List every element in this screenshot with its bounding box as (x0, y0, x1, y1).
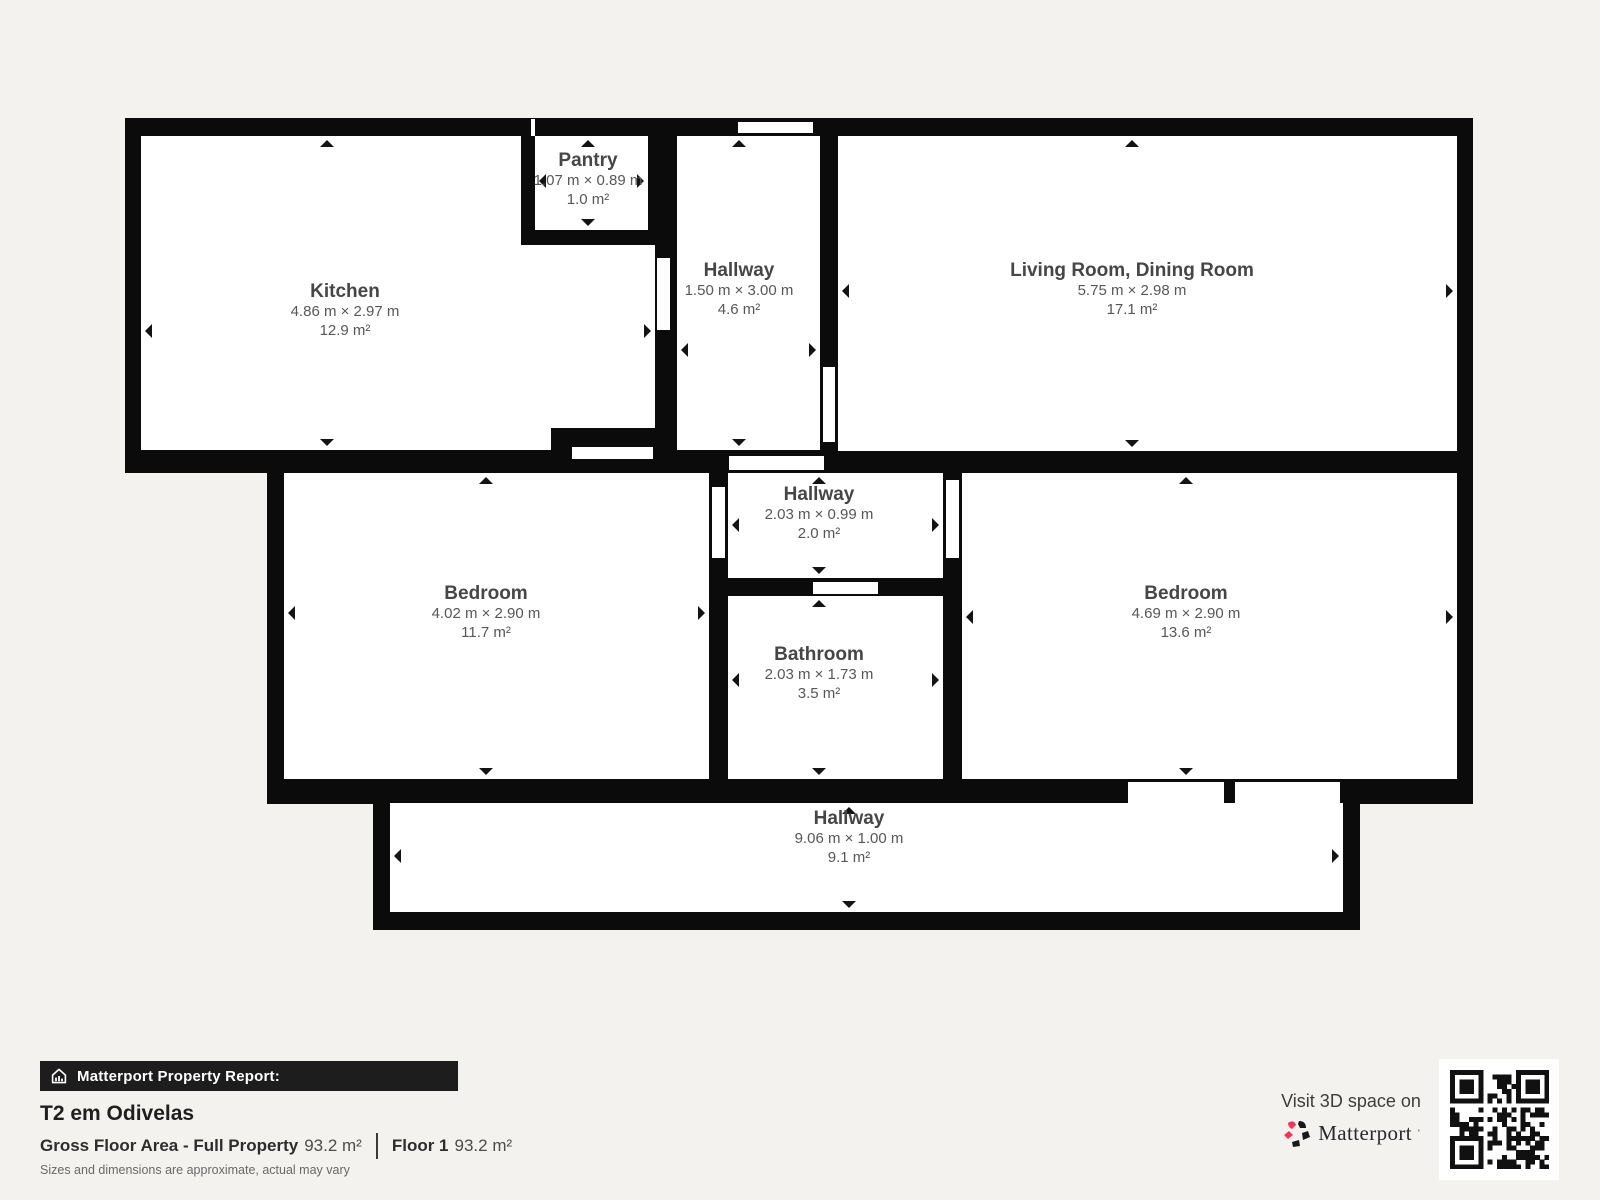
floor-label: Floor 1 (392, 1136, 449, 1156)
measure-arrow-left (732, 518, 739, 532)
house-chart-icon (50, 1067, 68, 1085)
measure-arrow-up (581, 140, 595, 147)
measure-arrow-right (1332, 849, 1339, 863)
room-name: Hallway (685, 261, 794, 281)
room-area: 3.5 m² (765, 684, 874, 703)
measure-arrow-left (966, 610, 973, 624)
room-dimensions: 2.03 m × 0.99 m (765, 505, 874, 524)
measure-arrow-right (1446, 610, 1453, 624)
measure-arrow-down (320, 439, 334, 446)
room-name: Kitchen (291, 282, 400, 302)
door-window-opening (572, 447, 653, 459)
measure-arrow-down (1125, 440, 1139, 447)
measure-arrow-up (812, 600, 826, 607)
measure-arrow-down (842, 901, 856, 908)
room-label-bedroom-left: Bedroom 4.02 m × 2.90 m 11.7 m² (432, 584, 541, 642)
floor-value: 93.2 m² (455, 1136, 513, 1156)
trademark-mark: ' (1418, 1128, 1420, 1138)
room-area: 17.1 m² (1010, 300, 1254, 319)
room-name: Bedroom (432, 584, 541, 604)
room-name: Hallway (765, 485, 874, 505)
gross-floor-area-label: Gross Floor Area - Full Property (40, 1136, 298, 1156)
floor-area-summary: Gross Floor Area - Full Property 93.2 m²… (40, 1133, 512, 1159)
qr-code-modules (1450, 1070, 1549, 1169)
room-dimensions: 9.06 m × 1.00 m (795, 829, 904, 848)
measure-arrow-left (681, 343, 688, 357)
disclaimer-text: Sizes and dimensions are approximate, ac… (40, 1163, 350, 1177)
gross-floor-area-value: 93.2 m² (304, 1136, 362, 1156)
property-report-page: Kitchen 4.86 m × 2.97 m 12.9 m² Pantry 1… (0, 0, 1600, 1200)
measure-arrow-right (644, 324, 651, 338)
room-area: 9.1 m² (795, 848, 904, 867)
room-dimensions: 4.86 m × 2.97 m (291, 302, 400, 321)
measure-arrow-up (320, 140, 334, 147)
measure-arrow-left (288, 606, 295, 620)
room-area: 11.7 m² (432, 623, 541, 642)
measure-arrow-right (932, 518, 939, 532)
measure-arrow-left (145, 324, 152, 338)
report-header-bar: Matterport Property Report: (40, 1061, 458, 1091)
room-name: Hallway (795, 809, 904, 829)
report-header-title: Matterport Property Report: (77, 1068, 280, 1085)
room-area: 1.0 m² (534, 190, 643, 209)
door-window-opening (657, 258, 670, 330)
room-label-kitchen: Kitchen 4.86 m × 2.97 m 12.9 m² (291, 282, 400, 340)
door-window-opening (1128, 782, 1224, 803)
matterport-pinwheel-icon (1282, 1119, 1312, 1147)
measure-arrow-right (1446, 284, 1453, 298)
room-label-bedroom-right: Bedroom 4.69 m × 2.90 m 13.6 m² (1132, 584, 1241, 642)
room-name: Pantry (534, 151, 643, 171)
room-label-living-dining: Living Room, Dining Room 5.75 m × 2.98 m… (1010, 261, 1254, 319)
measure-arrow-down (1179, 768, 1193, 775)
door-window-opening (531, 119, 535, 136)
room-area: 2.0 m² (765, 524, 874, 543)
room-name: Bathroom (765, 645, 874, 665)
measure-arrow-up (1179, 477, 1193, 484)
room-dimensions: 4.69 m × 2.90 m (1132, 604, 1241, 623)
measure-arrow-up (812, 477, 826, 484)
room-dimensions: 2.03 m × 1.73 m (765, 665, 874, 684)
measure-arrow-down (812, 567, 826, 574)
measure-arrow-down (812, 768, 826, 775)
door-window-opening (1235, 782, 1340, 803)
wall-segment (648, 118, 677, 245)
room-label-pantry: Pantry 1.07 m × 0.89 m 1.0 m² (534, 151, 643, 209)
door-window-opening (813, 582, 878, 594)
door-window-opening (946, 480, 959, 558)
measure-arrow-left (732, 673, 739, 687)
property-title: T2 em Odivelas (40, 1102, 194, 1126)
measure-arrow-down (732, 439, 746, 446)
room-area: 4.6 m² (685, 300, 794, 319)
measure-arrow-right (698, 606, 705, 620)
measure-arrow-left (394, 849, 401, 863)
room-dimensions: 1.07 m × 0.89 m (534, 171, 643, 190)
room-area: 12.9 m² (291, 321, 400, 340)
room-dimensions: 1.50 m × 3.00 m (685, 281, 794, 300)
brand-block: Visit 3D space on Matterport ' (1244, 1090, 1458, 1147)
door-window-opening (729, 456, 824, 470)
door-window-opening (738, 122, 813, 133)
room-name: Bedroom (1132, 584, 1241, 604)
measure-arrow-down (581, 219, 595, 226)
door-window-opening (823, 367, 835, 442)
measure-arrow-down (479, 768, 493, 775)
measure-arrow-left (842, 284, 849, 298)
room-label-hallway-bottom: Hallway 9.06 m × 1.00 m 9.1 m² (795, 809, 904, 867)
room-label-bathroom: Bathroom 2.03 m × 1.73 m 3.5 m² (765, 645, 874, 703)
room-name: Living Room, Dining Room (1010, 261, 1254, 281)
measure-arrow-up (479, 477, 493, 484)
vertical-divider (376, 1133, 378, 1159)
measure-arrow-right (932, 673, 939, 687)
measure-arrow-up (732, 140, 746, 147)
matterport-wordmark: Matterport (1318, 1121, 1412, 1146)
qr-code (1439, 1059, 1559, 1180)
matterport-logo-row: Matterport ' (1244, 1119, 1458, 1147)
room-dimensions: 4.02 m × 2.90 m (432, 604, 541, 623)
room-dimensions: 5.75 m × 2.98 m (1010, 281, 1254, 300)
measure-arrow-up (1125, 140, 1139, 147)
door-window-opening (712, 487, 725, 558)
visit-3d-text: Visit 3D space on (1244, 1090, 1458, 1112)
room-label-hallway-middle: Hallway 2.03 m × 0.99 m 2.0 m² (765, 485, 874, 543)
measure-arrow-right (809, 343, 816, 357)
room-label-hallway-top: Hallway 1.50 m × 3.00 m 4.6 m² (685, 261, 794, 319)
room-area: 13.6 m² (1132, 623, 1241, 642)
